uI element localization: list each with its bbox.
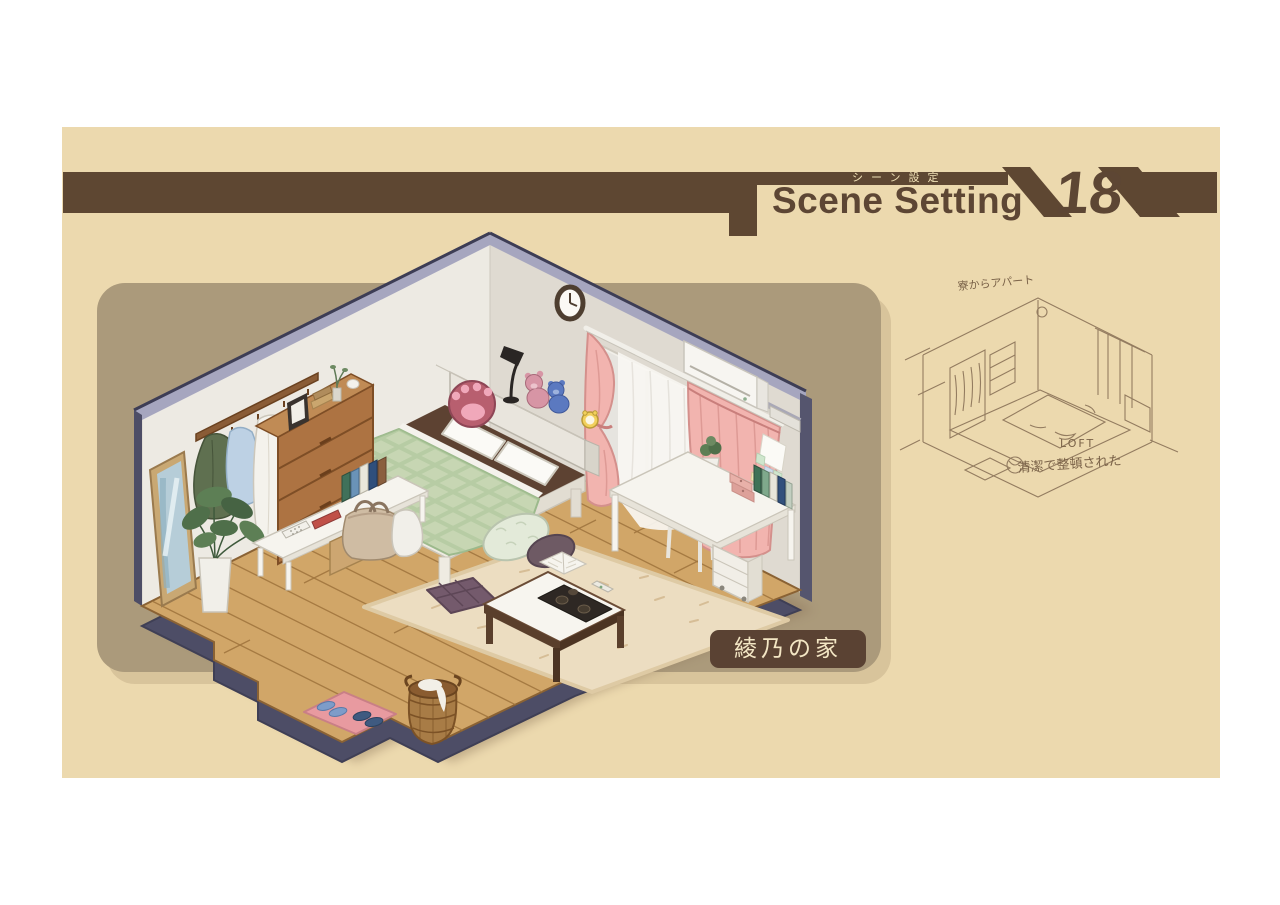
banner-bar-right <box>1136 172 1217 213</box>
paw-cushion <box>449 381 495 427</box>
banner-step-tab <box>729 172 757 236</box>
page-number: 18 <box>1052 158 1126 227</box>
boston-bag <box>343 502 423 561</box>
white-pouch <box>392 510 423 556</box>
scene-name-badge: 綾乃の家 <box>710 630 866 668</box>
page: 寮からアパート LOFT 清潔で整頓された シーン設定 Scene Settin… <box>0 0 1280 905</box>
wall-clock <box>557 287 583 319</box>
sketch-note-bottom: 清潔で整頓された <box>1017 454 1122 476</box>
sketch-note-top: 寮からアパート <box>957 272 1035 293</box>
alarm-clock <box>582 411 598 428</box>
page-title: Scene Setting <box>772 180 1023 222</box>
room-illustration: 寮からアパート LOFT 清潔で整頓された <box>0 0 1280 905</box>
banner-bar-left <box>63 172 757 213</box>
sketch-note-loft: LOFT <box>1060 437 1095 450</box>
